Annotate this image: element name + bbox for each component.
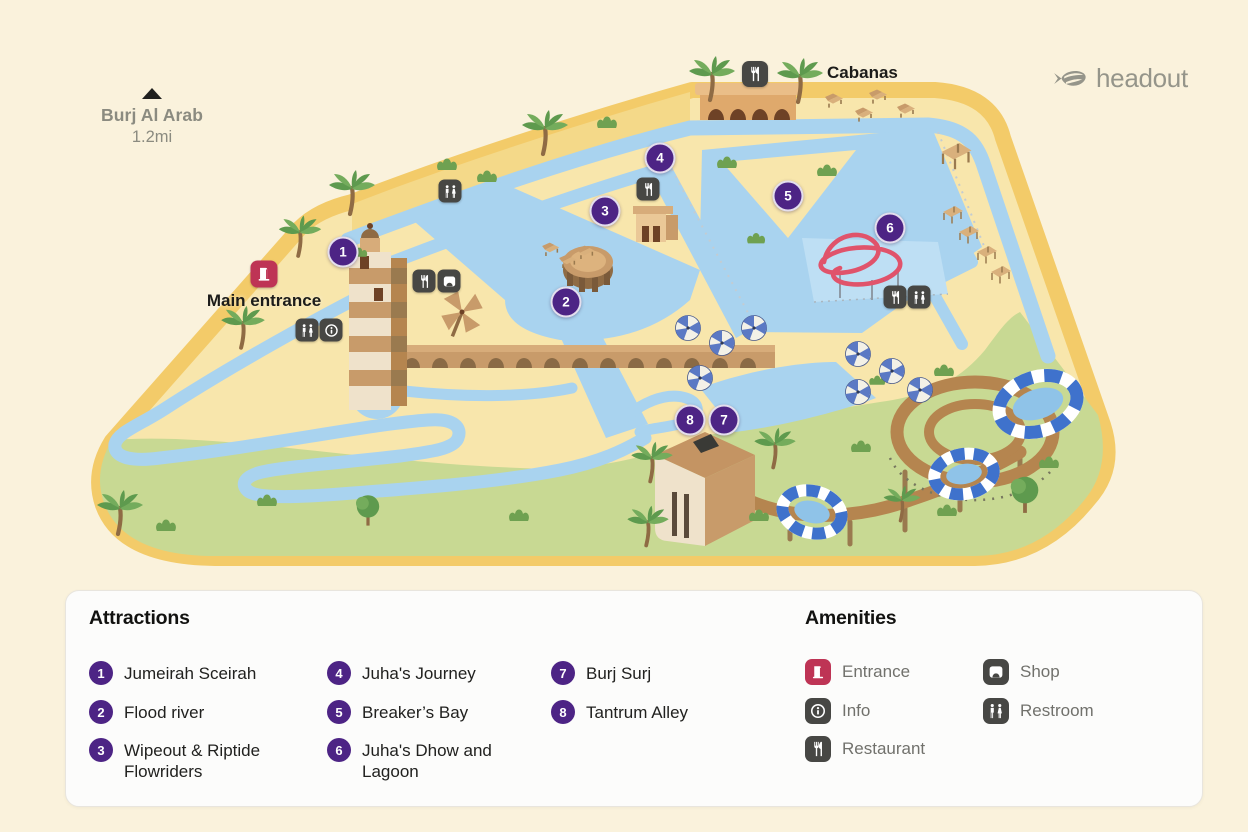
amenity-label: Entrance [842, 659, 910, 682]
headout-logo: headout [1052, 63, 1188, 94]
legend-attraction-1: 1 Jumeirah Sceirah [89, 661, 256, 685]
restaurant-icon [637, 178, 660, 201]
map-marker-1: 1 [328, 237, 359, 268]
map-marker-2: 2 [551, 287, 582, 318]
attraction-number-badge: 7 [551, 661, 575, 685]
attraction-label: Tantrum Alley [586, 700, 688, 723]
restaurant-icon [884, 286, 907, 309]
map-marker-7: 7 [709, 405, 740, 436]
marker-number: 2 [562, 295, 570, 310]
park-map: 1 2 3 4 5 6 7 8 Burj Al Arab 1.2mi Caban… [0, 0, 1248, 590]
amenities-title: Amenities [805, 607, 896, 630]
attraction-label: Jumeirah Sceirah [124, 661, 256, 684]
marker-number: 4 [656, 151, 664, 166]
amenity-label: Shop [1020, 659, 1060, 682]
cabanas-label: Cabanas [827, 63, 898, 83]
attraction-number-badge: 4 [327, 661, 351, 685]
map-marker-8: 8 [675, 405, 706, 436]
legend-amenity-shop: Shop [983, 659, 1060, 685]
headout-logo-icon [1052, 64, 1089, 93]
restaurant-icon [805, 736, 831, 762]
restroom-icon [908, 286, 931, 309]
attraction-label: Juha's Dhow and Lagoon [362, 738, 502, 782]
map-marker-3: 3 [590, 196, 621, 227]
marker-number: 1 [339, 245, 347, 260]
shop-icon [983, 659, 1009, 685]
landmark-burj-al-arab: Burj Al Arab 1.2mi [82, 88, 222, 147]
entrance-icon [251, 261, 278, 288]
landmark-triangle-icon [142, 88, 162, 99]
map-marker-6: 6 [875, 213, 906, 244]
legend-attraction-6: 6 Juha's Dhow and Lagoon [327, 738, 502, 782]
attraction-label: Burj Surj [586, 661, 651, 684]
restroom-icon [296, 319, 319, 342]
marker-number: 6 [886, 221, 894, 236]
attraction-number-badge: 2 [89, 700, 113, 724]
legend-amenity-restaurant: Restaurant [805, 736, 925, 762]
legend-card: Attractions 1 Jumeirah Sceirah 2 Flood r… [65, 590, 1203, 807]
legend-attraction-8: 8 Tantrum Alley [551, 700, 688, 724]
amenity-label: Restroom [1020, 698, 1094, 721]
restroom-icon [439, 180, 462, 203]
attraction-number-badge: 8 [551, 700, 575, 724]
marker-number: 8 [686, 413, 694, 428]
legend-amenity-restroom: Restroom [983, 698, 1094, 724]
legend-attraction-3: 3 Wipeout & Riptide Flowriders [89, 738, 276, 782]
amenity-label: Info [842, 698, 870, 721]
entrance-icon [805, 659, 831, 685]
attraction-label: Breaker’s Bay [362, 700, 468, 723]
legend-attraction-2: 2 Flood river [89, 700, 204, 724]
legend-amenity-info: Info [805, 698, 870, 724]
marker-number: 7 [720, 413, 728, 428]
restaurant-icon [413, 270, 436, 293]
restroom-icon [983, 698, 1009, 724]
landmark-name: Burj Al Arab [82, 105, 222, 126]
restaurant-icon [742, 61, 768, 87]
attractions-title: Attractions [89, 607, 190, 630]
attraction-label: Wipeout & Riptide Flowriders [124, 738, 276, 782]
legend-attraction-4: 4 Juha's Journey [327, 661, 476, 685]
headout-logo-text: headout [1096, 63, 1188, 94]
main-entrance-label: Main entrance [207, 291, 321, 311]
legend-attraction-5: 5 Breaker’s Bay [327, 700, 468, 724]
kiosk-building [633, 206, 678, 242]
attraction-number-badge: 5 [327, 700, 351, 724]
shop-icon [438, 270, 461, 293]
attraction-label: Juha's Journey [362, 661, 476, 684]
map-marker-4: 4 [645, 143, 676, 174]
amenity-label: Restaurant [842, 736, 925, 759]
landmark-distance: 1.2mi [82, 128, 222, 147]
info-icon [805, 698, 831, 724]
attraction-number-badge: 1 [89, 661, 113, 685]
map-marker-5: 5 [773, 181, 804, 212]
info-icon [320, 319, 343, 342]
attraction-number-badge: 3 [89, 738, 113, 762]
legend-attraction-7: 7 Burj Surj [551, 661, 651, 685]
legend-amenity-entrance: Entrance [805, 659, 910, 685]
attraction-label: Flood river [124, 700, 204, 723]
attraction-number-badge: 6 [327, 738, 351, 762]
marker-number: 5 [784, 189, 792, 204]
marker-number: 3 [601, 204, 609, 219]
